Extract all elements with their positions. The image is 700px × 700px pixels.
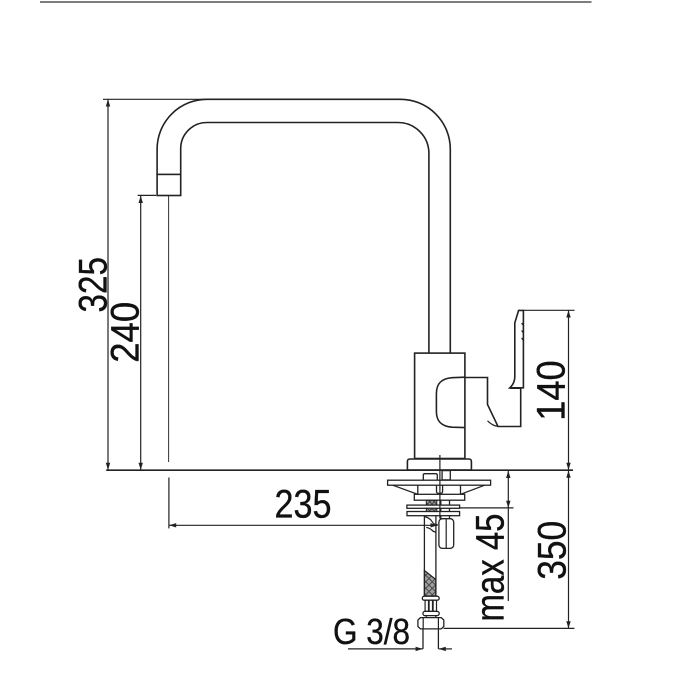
svg-text:235: 235: [275, 483, 332, 527]
svg-text:350: 350: [531, 521, 575, 580]
svg-text:G 3/8: G 3/8: [333, 611, 410, 652]
svg-text:140: 140: [530, 360, 574, 421]
svg-text:240: 240: [104, 302, 148, 363]
svg-text:max 45: max 45: [469, 514, 513, 622]
